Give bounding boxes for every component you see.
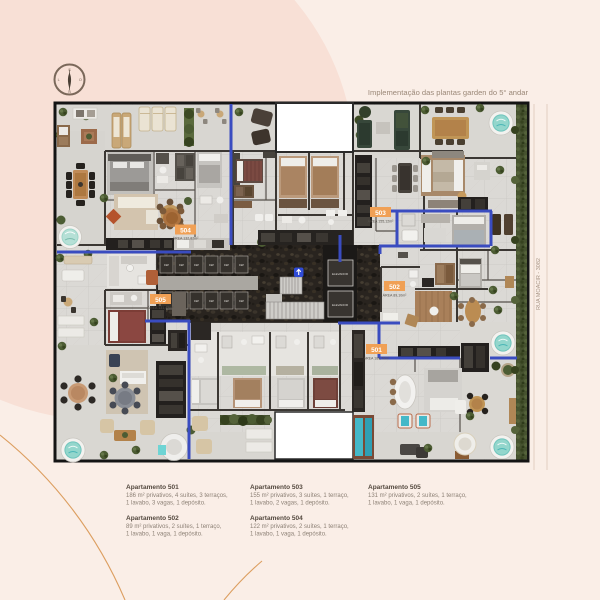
svg-text:ÁREA 89,10m²: ÁREA 89,10m² (383, 294, 408, 298)
svg-text:1 lavabo, 3 vagas, 1 depósito.: 1 lavabo, 3 vagas, 1 depósito. (126, 501, 206, 507)
svg-text:131 m² privativos, 2 suítes, 1: 131 m² privativos, 2 suítes, 1 terraço, (368, 493, 467, 499)
svg-text:Implementação das plantas gard: Implementação das plantas garden do 5° a… (368, 88, 529, 97)
svg-text:89 m² privativos, 2 suítes, 1: 89 m² privativos, 2 suítes, 1 terraço, (126, 524, 222, 530)
svg-text:S: S (68, 68, 71, 72)
svg-text:ELEVADOR: ELEVADOR (332, 272, 349, 276)
svg-text:L: L (58, 78, 60, 82)
svg-text:O: O (79, 78, 82, 82)
svg-text:501: 501 (371, 347, 382, 354)
svg-text:ÁREA 132,82m²: ÁREA 132,82m² (173, 237, 200, 241)
svg-text:155 m² privativos, 3 suítes, 1: 155 m² privativos, 3 suítes, 1 terraço, (250, 493, 349, 499)
svg-text:1 lavabo, 2 vagas, 1 depósito.: 1 lavabo, 2 vagas, 1 depósito. (250, 501, 330, 507)
svg-text:DEP: DEP (209, 263, 215, 267)
svg-text:122 m² privativos, 2 suítes, 1: 122 m² privativos, 2 suítes, 1 terraço, (250, 524, 349, 530)
svg-text:ÁREA 155,12m²: ÁREA 155,12m² (368, 220, 395, 224)
svg-text:N: N (68, 90, 71, 94)
svg-text:186 m² privativos, 4 suítes, 3: 186 m² privativos, 4 suítes, 3 terraços, (126, 493, 228, 499)
svg-text:Apartamento 501: Apartamento 501 (126, 484, 179, 491)
svg-text:1 lavabo, 1 vaga, 1 depósito.: 1 lavabo, 1 vaga, 1 depósito. (368, 501, 445, 507)
svg-text:DEP: DEP (239, 299, 245, 303)
svg-text:DEP: DEP (239, 263, 245, 267)
svg-text:ELEVADOR: ELEVADOR (332, 303, 349, 307)
svg-text:Apartamento 504: Apartamento 504 (250, 515, 303, 522)
svg-text:1 lavabo, 1 vaga, 1 depósito.: 1 lavabo, 1 vaga, 1 depósito. (250, 532, 327, 538)
svg-text:DEP: DEP (179, 263, 185, 267)
svg-text:DEP: DEP (164, 263, 170, 267)
svg-text:DEP: DEP (194, 263, 200, 267)
svg-text:DEP: DEP (224, 263, 230, 267)
svg-text:Apartamento 505: Apartamento 505 (368, 484, 421, 491)
svg-text:502: 502 (389, 284, 400, 291)
svg-text:RUA MOACIR - 3082: RUA MOACIR - 3082 (536, 258, 542, 310)
svg-text:ÁREA 186,70m²: ÁREA 186,70m² (364, 357, 391, 361)
svg-text:505: 505 (155, 297, 166, 304)
svg-text:1 lavabo, 1 vaga, 1 depósito.: 1 lavabo, 1 vaga, 1 depósito. (126, 532, 203, 538)
svg-text:ÁREA 131,43m²: ÁREA 131,43m² (148, 306, 175, 310)
svg-text:DEP: DEP (209, 299, 215, 303)
svg-text:DEP: DEP (224, 299, 230, 303)
svg-text:Apartamento 503: Apartamento 503 (250, 484, 303, 491)
svg-text:Apartamento 502: Apartamento 502 (126, 515, 179, 522)
svg-text:503: 503 (375, 210, 386, 217)
svg-text:DEP: DEP (194, 299, 200, 303)
svg-text:504: 504 (180, 228, 191, 235)
